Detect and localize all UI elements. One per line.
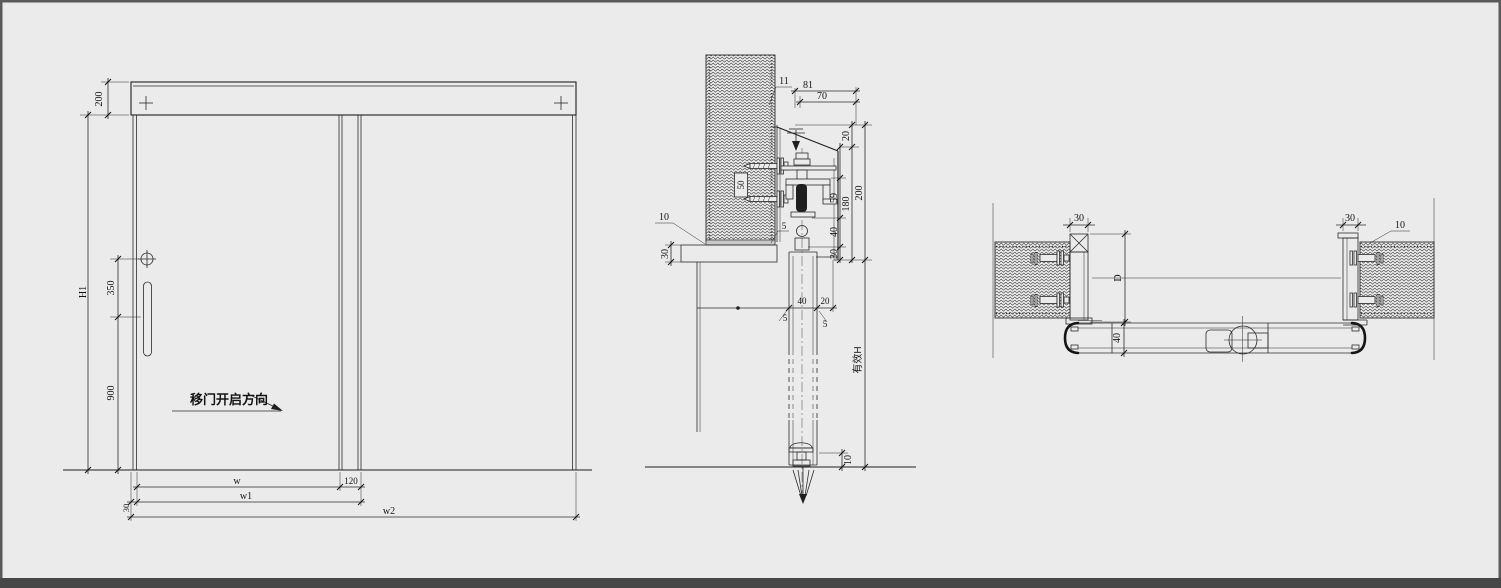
dim-overlap-120: 120 — [344, 476, 358, 486]
dim-header-height: 200 — [94, 92, 105, 107]
right-wall — [1360, 242, 1434, 318]
dim-handle-offset: 350 — [106, 281, 117, 296]
dim-gap-20-door: 20 — [821, 296, 831, 306]
dim-width-w1: w1 — [240, 491, 252, 502]
dim-clear-5a: 5 — [782, 221, 787, 231]
dim-width-w: w — [233, 476, 241, 487]
dim-clear-5b: 5 — [783, 313, 788, 323]
dim-lip-11: 11 — [779, 76, 789, 87]
dim-post-30-left: 30 — [1074, 213, 1084, 224]
open-direction-label: 移门开启方向 — [190, 392, 268, 407]
dim-door-height: H1 — [78, 286, 89, 298]
wall-section — [706, 55, 775, 242]
cad-drawing: 200 H1 350 900 w 120 30 w1 w2 移门开启方向 50 … — [0, 0, 1501, 588]
dim-height-180: 180 — [841, 197, 852, 212]
dim-gap-10-plan: 10 — [1395, 220, 1405, 231]
dim-effective-height: 有效H — [851, 346, 864, 373]
dim-width-w2: w2 — [383, 506, 395, 517]
dim-gap-20-top: 20 — [841, 131, 852, 141]
dim-handle-height: 900 — [106, 386, 117, 401]
dim-gap-10-wall: 10 — [659, 212, 669, 223]
frame-bottom — [0, 578, 1501, 588]
dim-floor-10: 10 — [843, 455, 854, 465]
dim-door-40-plan: 40 — [1112, 333, 1123, 343]
dim-clear-5c: 5 — [823, 319, 828, 329]
dim-board-30: 30 — [660, 249, 671, 259]
dim-edge-30: 30 — [121, 504, 131, 513]
dim-track-81: 81 — [803, 80, 813, 91]
dim-track-70: 70 — [817, 91, 827, 102]
frame-left — [0, 0, 3, 588]
frame-top — [0, 0, 1501, 3]
dim-seg-40: 40 — [829, 227, 840, 237]
dim-post-30-right: 30 — [1345, 213, 1355, 224]
lintel-strip — [706, 240, 775, 245]
dim-roller-59: 59 — [829, 193, 840, 203]
dim-height-200: 200 — [854, 186, 865, 201]
dim-wall-50: 50 — [736, 180, 746, 190]
drawing-canvas: 200 H1 350 900 w 120 30 w1 w2 移门开启方向 50 … — [0, 0, 1501, 588]
wall-label-50: 50 — [735, 173, 748, 197]
dim-seg-30: 30 — [829, 249, 840, 259]
dim-door-40: 40 — [798, 296, 808, 306]
